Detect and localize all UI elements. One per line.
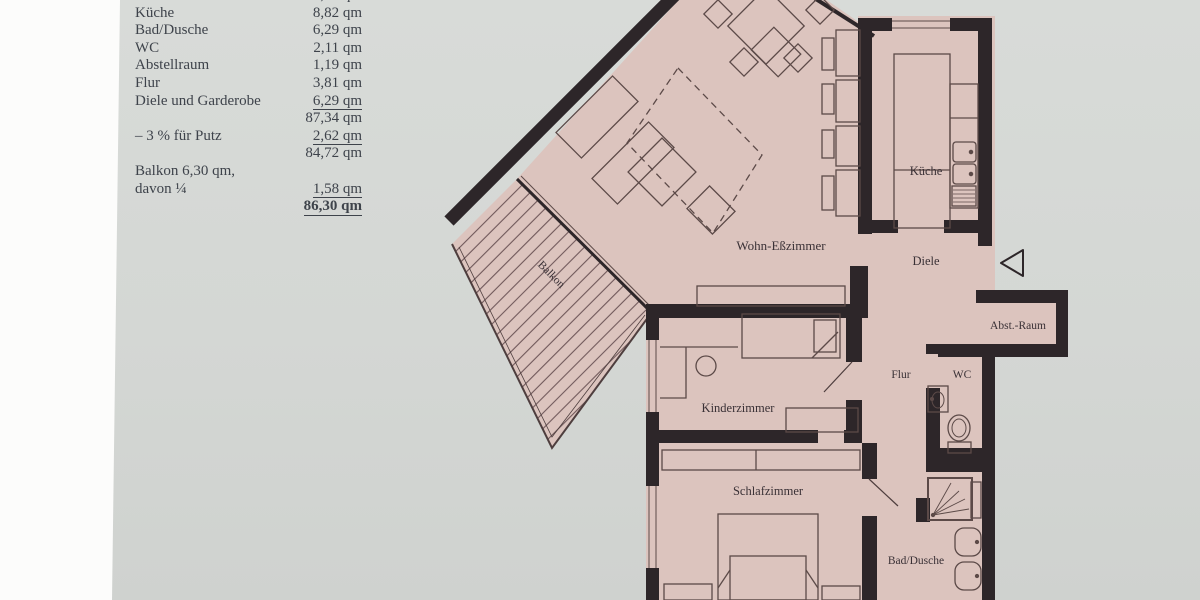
balcony-note: Balkon 6,30 qm, xyxy=(135,163,235,181)
room-label-storage: Abst.-Raum xyxy=(990,320,1046,332)
deduction-area: 2,62 qm xyxy=(313,128,362,146)
table-row: Abstellraum1,19 qm xyxy=(135,57,362,75)
room-name: Flur xyxy=(135,75,160,93)
room-name: WC xyxy=(135,40,159,58)
deduction-name: – 3 % für Putz xyxy=(135,128,222,146)
room-area: 1,19 qm xyxy=(313,57,362,75)
room-label-child: Kinderzimmer xyxy=(702,401,776,415)
room-name: Bad/Dusche xyxy=(135,22,208,40)
table-row-balcony: Balkon 6,30 qm, xyxy=(135,163,362,181)
balcony-share-name: davon ¼ xyxy=(135,181,187,199)
room-label-wc: WC xyxy=(953,369,972,381)
table-row-subtotal: 84,72 qm xyxy=(135,145,362,163)
subtotal-area: 87,34 qm xyxy=(305,110,362,128)
room-area: 2,11 qm xyxy=(313,40,362,58)
floor-plan-photo: Wohn- und Eßzimmer58,83 qm Küche8,82 qm … xyxy=(0,0,1200,600)
entrance-arrow-icon xyxy=(1001,250,1023,276)
table-row-subtotal: 87,34 qm xyxy=(135,110,362,128)
total-area: 86,30 qm xyxy=(304,198,362,216)
table-row: Diele und Garderobe6,29 qm xyxy=(135,93,362,111)
room-name: Abstellraum xyxy=(135,57,209,75)
room-label-bath: Bad/Dusche xyxy=(888,555,944,567)
room-name: Küche xyxy=(135,5,174,23)
room-area: 6,29 qm xyxy=(313,93,362,111)
room-label-bedroom: Schlafzimmer xyxy=(733,484,804,498)
room-label-corridor: Flur xyxy=(891,369,910,381)
table-row: Bad/Dusche6,29 qm xyxy=(135,22,362,40)
room-label-kitchen: Küche xyxy=(910,164,943,178)
floor-plan-drawing: Wohn-Eßzimmer Küche Diele Abst.-Raum Flu… xyxy=(440,0,1080,600)
page-left-margin xyxy=(0,0,130,600)
balcony-share-area: 1,58 qm xyxy=(313,181,362,199)
room-name: Diele und Garderobe xyxy=(135,93,261,111)
table-row-total: 86,30 qm xyxy=(135,198,362,216)
table-row: Flur3,81 qm xyxy=(135,75,362,93)
table-row-deduction: – 3 % für Putz2,62 qm xyxy=(135,128,362,146)
room-area: 6,29 qm xyxy=(313,22,362,40)
room-area: 3,81 qm xyxy=(313,75,362,93)
table-row: WC2,11 qm xyxy=(135,40,362,58)
subtotal-area: 84,72 qm xyxy=(305,145,362,163)
room-area: 8,82 qm xyxy=(313,5,362,23)
room-label-living: Wohn-Eßzimmer xyxy=(736,238,826,253)
table-row-balcony-share: davon ¼1,58 qm xyxy=(135,181,362,199)
area-calculation-table: Wohn- und Eßzimmer58,83 qm Küche8,82 qm … xyxy=(135,0,362,216)
table-row: Küche8,82 qm xyxy=(135,5,362,23)
room-label-hall: Diele xyxy=(912,254,940,268)
